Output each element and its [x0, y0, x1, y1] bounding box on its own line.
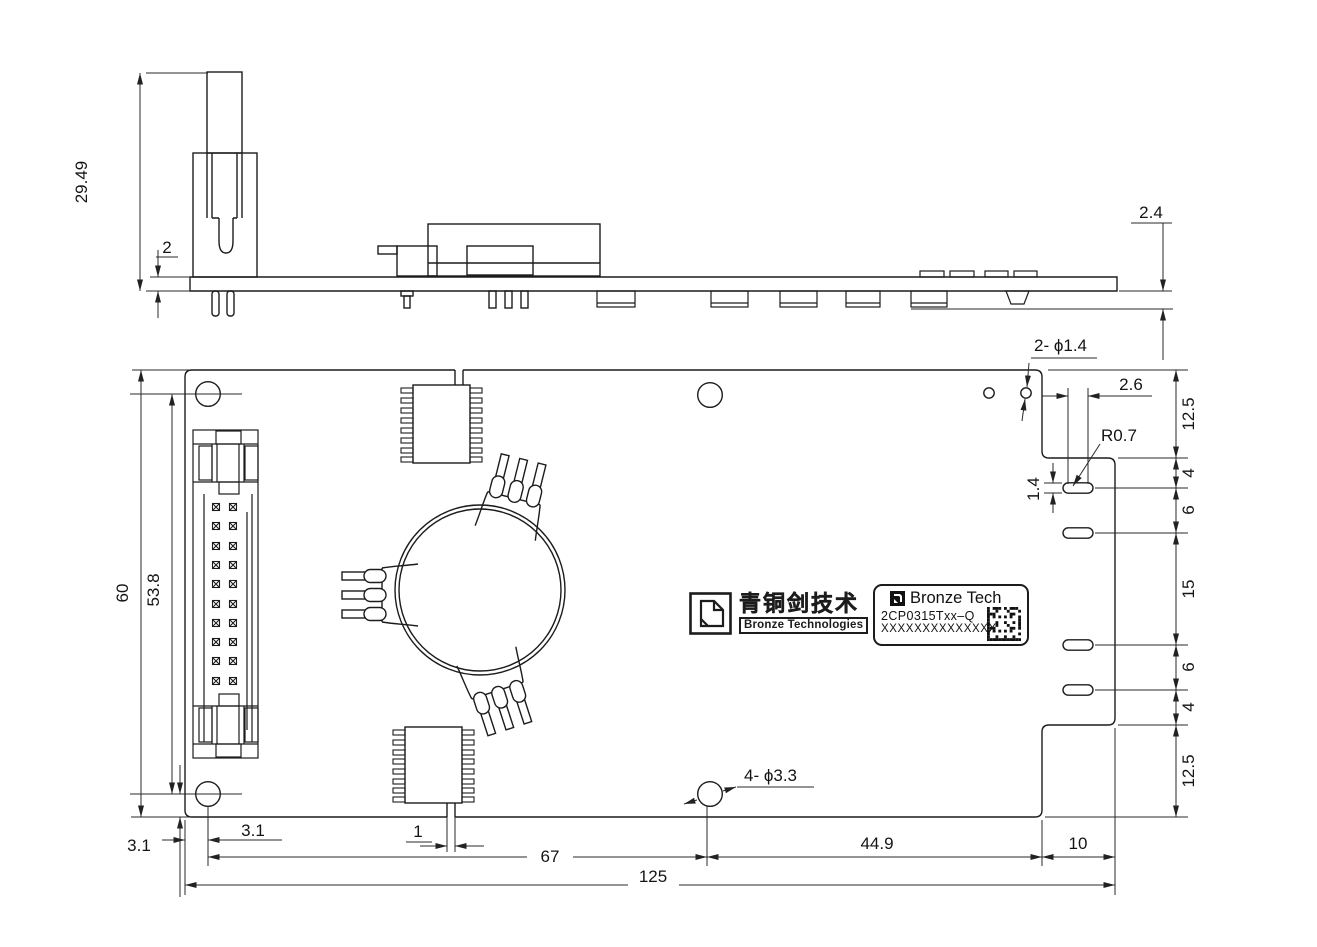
dim-slot-height: 1.4 — [1024, 477, 1043, 501]
product-label: Bronze Tech 2CP0315Txx–Q XXXXXXXXXXXXXX — [873, 584, 1029, 646]
dim-board-height: 60 — [113, 584, 132, 603]
plan-view-dimensions — [130, 358, 1188, 897]
dim-slot-pitch: 2.6 — [1119, 375, 1143, 394]
engineering-drawing: 29.49 2 2.4 — [0, 0, 1317, 947]
side-view-dimensions — [140, 73, 1173, 360]
label-small-holes: 2- ϕ1.4 — [1034, 336, 1087, 355]
brand-logo-icon — [890, 591, 905, 606]
dim-board-thickness: 2 — [162, 238, 171, 257]
dim-chain-6-top: 6 — [1179, 505, 1198, 514]
company-logo-icon — [689, 592, 732, 635]
idc-connector — [193, 430, 258, 758]
dim-hole-span-v: 53.8 — [144, 573, 163, 606]
side-transformer-profile — [428, 224, 600, 308]
dim-notch-width: 10 — [1069, 834, 1088, 853]
side-connector — [193, 72, 257, 316]
dim-hole-offset-left: 3.1 — [241, 821, 265, 840]
company-name-english: Bronze Technologies — [739, 617, 868, 634]
plan-bottom-slot — [447, 803, 455, 817]
drawing-svg: 29.49 2 2.4 — [0, 0, 1317, 947]
mount-hole-top-middle — [698, 383, 723, 408]
dim-underside-height: 2.4 — [1139, 203, 1163, 222]
dim-hole-to-notch: 44.9 — [860, 834, 893, 853]
plan-top-slot — [455, 370, 463, 385]
company-logo: 青铜剑技术 Bronze Technologies — [689, 592, 868, 635]
dim-hole-offset-bottom: 3.1 — [127, 836, 151, 855]
dim-slot-width: 1 — [413, 822, 422, 841]
dim-chain-6-bottom: 6 — [1179, 662, 1198, 671]
dim-hole-span-h: 67 — [541, 847, 560, 866]
dim-chain-15: 15 — [1179, 580, 1198, 599]
dim-connector-height: 29.49 — [72, 161, 91, 204]
company-name-chinese: 青铜剑技术 — [739, 592, 859, 616]
transformer — [342, 452, 565, 738]
dim-chain-12p5-top: 12.5 — [1179, 397, 1198, 430]
ic-bottom — [393, 727, 474, 803]
dim-chain-12p5-bottom: 12.5 — [1179, 754, 1198, 787]
label-mount-holes: 4- ϕ3.3 — [744, 766, 797, 785]
small-hole-1 — [984, 388, 994, 398]
side-view — [190, 72, 1117, 316]
side-underside-components — [597, 291, 1029, 307]
ic-top — [401, 385, 482, 463]
dim-chain-4-top: 4 — [1179, 468, 1198, 477]
side-top-pads — [920, 271, 1037, 277]
side-board-outline — [190, 277, 1117, 291]
brand-name: Bronze Tech — [910, 589, 1001, 608]
right-edge-slots — [1063, 483, 1093, 695]
small-hole-2 — [1021, 388, 1031, 398]
data-matrix-code — [987, 607, 1021, 641]
mount-hole-bottom-middle — [698, 782, 723, 807]
idc-pin-grid — [213, 504, 237, 685]
dim-board-width: 125 — [639, 867, 667, 886]
dim-slot-radius: R0.7 — [1101, 426, 1137, 445]
dim-chain-4-bottom: 4 — [1179, 702, 1198, 711]
